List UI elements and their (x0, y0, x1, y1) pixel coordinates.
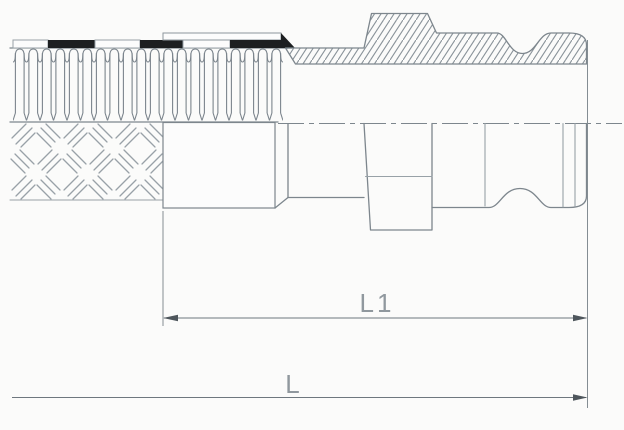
ferrule-body (163, 123, 275, 209)
hose-braid (10, 123, 163, 200)
ferrule-outer-lip (163, 33, 281, 40)
band-segment-white (183, 40, 230, 48)
engineering-drawing-canvas: L1 L (0, 0, 624, 430)
hose-fitting-drawing: L1 L (0, 0, 624, 430)
dimension-label-l1: L1 (360, 288, 395, 318)
dimension-label-l: L (285, 369, 302, 399)
band-segment-black (48, 40, 95, 48)
band-segment-white (13, 40, 48, 48)
band-segment-white (95, 40, 140, 48)
hose-corrugation (10, 48, 292, 122)
band-segment-black (140, 40, 183, 48)
